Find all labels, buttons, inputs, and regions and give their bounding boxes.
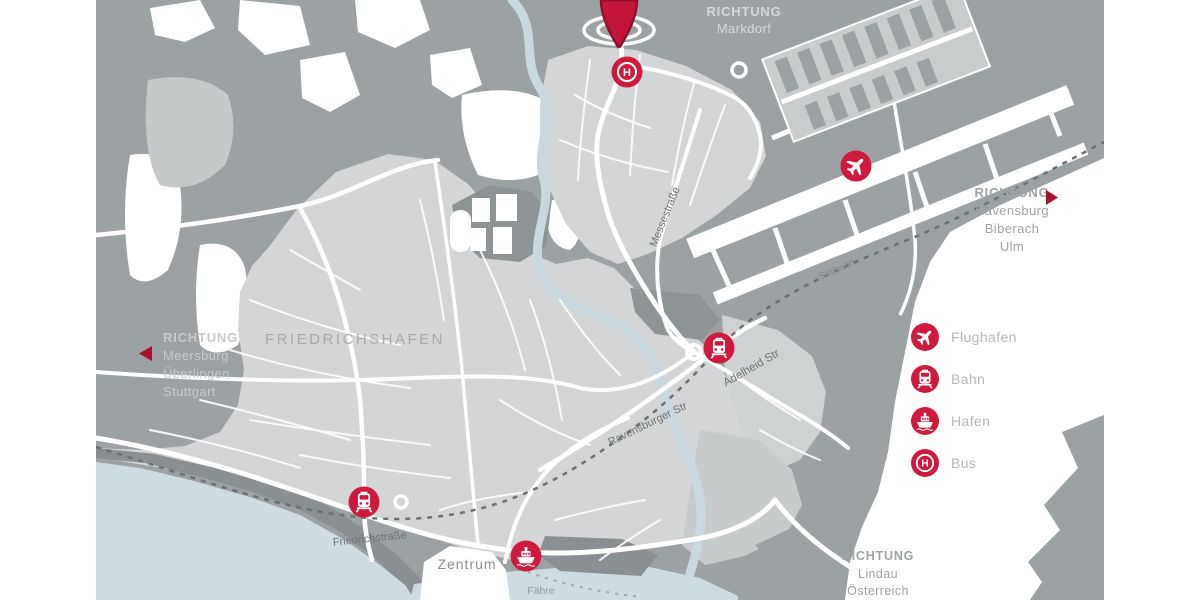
direction-destination: Stuttgart: [163, 384, 216, 399]
right-margin: [1104, 0, 1200, 600]
city-station-marker: [349, 487, 380, 518]
airport-marker: [841, 151, 872, 182]
station-marker: [704, 333, 735, 364]
left-margin: [0, 0, 96, 600]
legend-label: Hafen: [951, 413, 990, 429]
legend-label: Flughafen: [951, 329, 1017, 345]
direction-destination: Österreich: [847, 584, 909, 598]
friedrichshafen-map: H: [0, 0, 1200, 600]
direction-destination: Überlingen: [163, 366, 230, 381]
city-name-label: FRIEDRICHSHAFEN: [265, 331, 445, 348]
direction-destination: Lindau: [858, 567, 898, 581]
direction-heading: RICHTUNG: [842, 549, 914, 563]
direction-heading: RICHTUNG: [163, 330, 238, 345]
direction-destination: Ravensburg: [975, 203, 1049, 218]
direction-heading: RICHTUNG: [974, 185, 1049, 200]
harbor-marker: [511, 541, 542, 572]
label-faehre: Fähre: [527, 585, 555, 597]
bus-stop-marker: [612, 57, 643, 88]
direction-destination: Meersburg: [163, 348, 229, 363]
district-label-zentrum: Zentrum: [437, 556, 496, 572]
direction-heading: RICHTUNG: [706, 4, 781, 19]
legend-label: Bus: [951, 455, 976, 471]
map-base: [96, 0, 1104, 600]
direction-destination: Biberach: [985, 221, 1040, 236]
legend-label: Bahn: [951, 371, 985, 387]
direction-destination: Markdorf: [717, 21, 772, 36]
direction-destination: Ulm: [1000, 239, 1024, 254]
